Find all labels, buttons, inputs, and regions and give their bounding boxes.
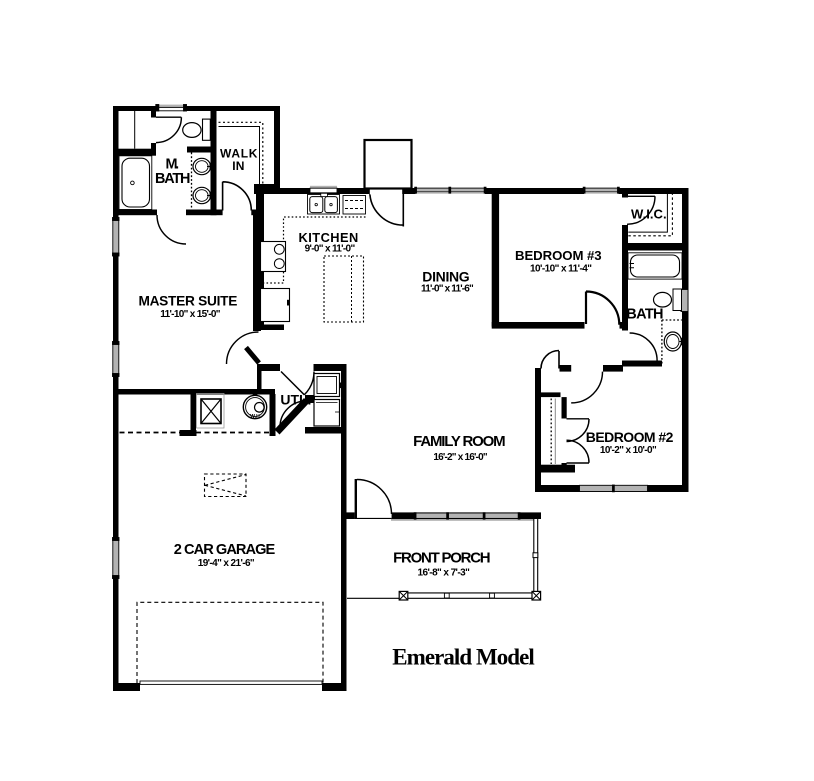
svg-text:BATH: BATH bbox=[155, 171, 191, 187]
svg-text:2 CAR GARAGE: 2 CAR GARAGE bbox=[174, 542, 276, 558]
svg-text:W.H: W.H bbox=[250, 414, 260, 420]
svg-text:11'-0" x 11'-6": 11'-0" x 11'-6" bbox=[421, 284, 474, 295]
svg-text:16'-2" x 16'-0": 16'-2" x 16'-0" bbox=[433, 452, 487, 463]
svg-text:10'-2" x 10'-0": 10'-2" x 10'-0" bbox=[600, 445, 657, 456]
svg-text:MASTER SUITE: MASTER SUITE bbox=[138, 294, 237, 309]
svg-text:10'-10" x 11'-4": 10'-10" x 11'-4" bbox=[530, 263, 592, 274]
svg-text:BEDROOM #3: BEDROOM #3 bbox=[515, 248, 602, 263]
svg-text:DINING: DINING bbox=[422, 269, 470, 285]
svg-text:FAMILY ROOM: FAMILY ROOM bbox=[413, 433, 506, 450]
svg-text:FRONT PORCH: FRONT PORCH bbox=[393, 550, 491, 567]
svg-text:BATH: BATH bbox=[626, 307, 663, 323]
svg-text:16'-8" x 7'-3": 16'-8" x 7'-3" bbox=[418, 568, 471, 579]
svg-text:9'-0" x 11'-0": 9'-0" x 11'-0" bbox=[305, 244, 356, 255]
svg-text:11'-10" x 15'-0": 11'-10" x 15'-0" bbox=[160, 309, 221, 320]
svg-text:19'-4" x 21'-6": 19'-4" x 21'-6" bbox=[198, 558, 255, 569]
svg-text:IN: IN bbox=[232, 159, 244, 173]
svg-text:Emerald Model: Emerald Model bbox=[392, 645, 535, 670]
svg-text:UTL.: UTL. bbox=[280, 392, 311, 408]
svg-text:W.I.C.: W.I.C. bbox=[631, 207, 667, 222]
svg-text:BEDROOM #2: BEDROOM #2 bbox=[586, 429, 674, 445]
